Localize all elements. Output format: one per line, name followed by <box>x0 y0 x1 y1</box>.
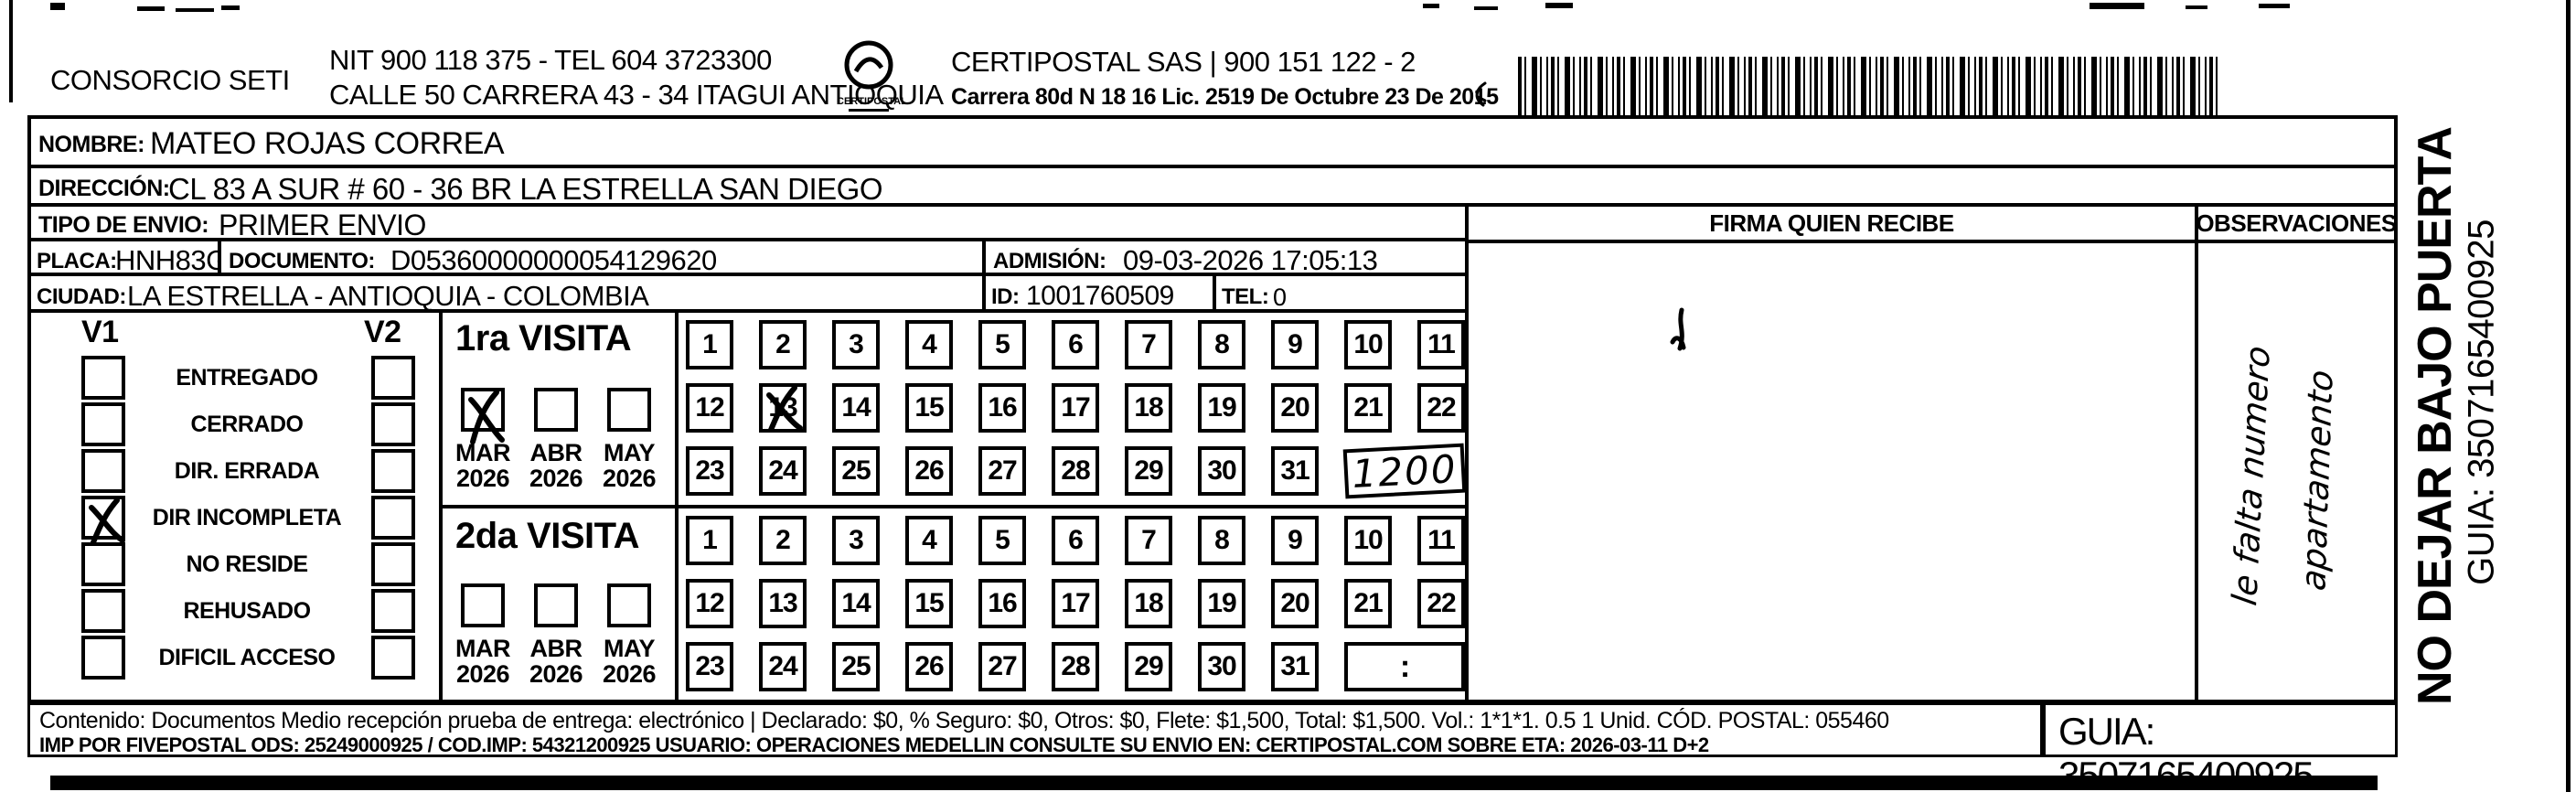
scan-artifact-bottom-bar <box>50 776 2378 790</box>
first-visit-month-checkbox-may <box>607 388 651 432</box>
second-visit-day-cell-22: 22 <box>1417 579 1465 628</box>
first-visit-month-checkbox-abr <box>534 388 578 432</box>
first-visit-day-cell-4: 4 <box>905 320 953 369</box>
second-visit-month-label: ABR <box>519 635 593 663</box>
ciudad-cell: CIUDAD: LA ESTRELLA - ANTIOQUIA - COLOMB… <box>27 273 986 313</box>
footer-imp-line: IMP POR FIVEPOSTAL ODS: 25249000925 / CO… <box>39 733 1709 757</box>
second-visit-day-cell-17: 17 <box>1052 579 1099 628</box>
v1-checkbox-no-reside <box>81 542 125 586</box>
scan-artifact <box>137 6 165 11</box>
documento-cell: DOCUMENTO: D05360000000054129620 <box>218 238 986 276</box>
observaciones-header: OBSERVACIONES <box>2198 207 2394 243</box>
firma-header: FIRMA QUIEN RECIBE <box>1469 207 2195 243</box>
first-visit-time-box: 1200 <box>1343 444 1467 499</box>
tracking-barcode <box>1518 57 2218 117</box>
v1-checkbox-dir-errada <box>81 449 125 493</box>
first-visit-month-label: ABR <box>519 439 593 467</box>
second-visit-month-checkbox-mar <box>461 583 505 627</box>
ink-smudge <box>1470 80 1491 108</box>
scan-artifact <box>2259 4 2290 8</box>
direccion-value: CL 83 A SUR # 60 - 36 BR LA ESTRELLA SAN… <box>168 172 882 207</box>
first-visit-day-cell-6: 6 <box>1052 320 1099 369</box>
id-value: 1001760509 <box>1026 281 1174 312</box>
nombre-label: NOMBRE: <box>38 132 144 158</box>
certipostal-logo-icon <box>842 38 895 91</box>
placa-label: PLACA: <box>37 249 117 274</box>
status-option-label: DIR. ERRADA <box>125 458 369 485</box>
second-visit-day-cell-8: 8 <box>1198 516 1245 565</box>
v1-checkbox-dir-incompleta <box>81 496 125 540</box>
first-visit-day-cell-28: 28 <box>1052 446 1099 496</box>
first-visit-year-label: 2026 <box>519 465 593 493</box>
second-visit-day-cell-3: 3 <box>832 516 880 565</box>
v2-column-header: V2 <box>364 315 401 350</box>
scan-artifact <box>1423 4 1439 8</box>
observaciones-column: OBSERVACIONES <box>2195 203 2398 703</box>
first-visit-day-cell-24: 24 <box>759 446 807 496</box>
first-visit-day-cell-18: 18 <box>1125 383 1172 433</box>
status-option-label: REHUSADO <box>125 598 369 625</box>
direccion-row: DIRECCIÓN: CL 83 A SUR # 60 - 36 BR LA E… <box>27 165 2398 207</box>
second-visit-day-cell-31: 31 <box>1271 642 1319 691</box>
first-visit-month-label: MAY <box>593 439 666 467</box>
first-visit-day-cell-1: 1 <box>686 320 733 369</box>
side-guia-number: GUIA: 3507165400925 <box>2462 219 2503 585</box>
first-visit-day-cell-10: 10 <box>1344 320 1392 369</box>
first-visit-day-cell-30: 30 <box>1198 446 1245 496</box>
first-visit-day-cell-16: 16 <box>978 383 1026 433</box>
v1-column-header: V1 <box>81 315 119 350</box>
v2-checkbox-dificil-acceso <box>371 636 415 680</box>
no-dejar-bajo-puerta-label: NO DEJAR BAJO PUERTA <box>2408 127 2463 705</box>
second-visit-day-cell-4: 4 <box>905 516 953 565</box>
scan-artifact <box>50 3 65 10</box>
v2-checkbox-dir-incompleta <box>371 496 415 540</box>
first-visit-day-cell-14: 14 <box>832 383 880 433</box>
second-visit-title: 2da VISITA <box>455 516 639 557</box>
direccion-label: DIRECCIÓN: <box>38 176 170 202</box>
first-visit-day-cell-26: 26 <box>905 446 953 496</box>
first-visit-day-cell-31: 31 <box>1271 446 1319 496</box>
delivery-status-section: V1 V2 ENTREGADOCERRADODIR. ERRADADIR INC… <box>27 309 443 703</box>
first-visit-day-cell-5: 5 <box>978 320 1026 369</box>
handwritten-x-mark <box>460 385 513 444</box>
footer-guia-number: GUIA: 3507165400925 <box>2058 710 2395 792</box>
admision-label: ADMISIÓN: <box>993 249 1106 274</box>
first-visit-day-cell-20: 20 <box>1271 383 1319 433</box>
id-label: ID: <box>991 284 1020 310</box>
second-visit-day-cell-6: 6 <box>1052 516 1099 565</box>
first-visit-day-cell-22: 22 <box>1417 383 1465 433</box>
second-visit-day-cell-20: 20 <box>1271 579 1319 628</box>
footer-contents-line: Contenido: Documentos Medio recepción pr… <box>39 708 1889 734</box>
observaciones-handwriting-line2: apartamento <box>2293 368 2340 594</box>
footer-info-box: Contenido: Documentos Medio recepción pr… <box>27 702 2043 757</box>
first-visit-day-cell-8: 8 <box>1198 320 1245 369</box>
first-visit-month-label: MAR <box>446 439 519 467</box>
company-nit-line: NIT 900 118 375 - TEL 604 3723300 <box>329 44 772 77</box>
second-visit-month-checkbox-abr <box>534 583 578 627</box>
v1-checkbox-entregado <box>81 356 125 400</box>
documento-label: DOCUMENTO: <box>229 249 375 274</box>
v2-checkbox-entregado <box>371 356 415 400</box>
status-option-label: DIFICIL ACCESO <box>125 645 369 671</box>
first-visit-day-cell-13: 13 <box>759 383 807 433</box>
scan-artifact <box>2186 5 2207 9</box>
scan-artifact-right-edge <box>2566 0 2571 792</box>
scan-artifact <box>1474 6 1498 10</box>
scan-artifact <box>1545 3 1573 8</box>
first-visit-day-cell-7: 7 <box>1125 320 1172 369</box>
second-visit-month-checkbox-may <box>607 583 651 627</box>
second-visit-day-cell-23: 23 <box>686 642 733 691</box>
second-visit-day-cell-9: 9 <box>1271 516 1319 565</box>
admision-cell: ADMISIÓN: 09-03-2026 17:05:13 <box>982 238 1469 276</box>
status-option-label: ENTREGADO <box>125 365 369 391</box>
first-visit-day-cell-25: 25 <box>832 446 880 496</box>
tipo-envio-row: TIPO DE ENVIO: PRIMER ENVIO <box>27 203 1469 241</box>
ciudad-value: LA ESTRELLA - ANTIOQUIA - COLOMBIA <box>127 280 648 313</box>
status-option-label: DIR INCOMPLETA <box>125 505 369 531</box>
second-visit-day-cell-18: 18 <box>1125 579 1172 628</box>
first-visit-title: 1ra VISITA <box>455 318 631 359</box>
placa-cell: PLACA: HNH83G <box>27 238 221 276</box>
second-visit-day-cell-12: 12 <box>686 579 733 628</box>
scan-artifact <box>221 5 240 10</box>
v2-checkbox-no-reside <box>371 542 415 586</box>
second-visit-year-label: 2026 <box>593 660 666 689</box>
tel-cell: TEL: 0 <box>1213 273 1469 313</box>
second-visit-day-cell-29: 29 <box>1125 642 1172 691</box>
second-visit-month-label: MAY <box>593 635 666 663</box>
second-visit-day-cell-5: 5 <box>978 516 1026 565</box>
first-visit-day-grid: 1234567891011121314151617181920212223242… <box>675 309 1469 508</box>
first-visit-day-cell-15: 15 <box>905 383 953 433</box>
tel-value: 0 <box>1273 284 1287 312</box>
first-visit-day-cell-21: 21 <box>1344 383 1392 433</box>
second-visit-panel: 2da VISITA MAR2026ABR2026MAY2026 <box>439 505 679 703</box>
first-visit-day-cell-3: 3 <box>832 320 880 369</box>
second-visit-day-grid: 1234567891011121314151617181920212223242… <box>675 505 1469 703</box>
second-visit-day-cell-16: 16 <box>978 579 1026 628</box>
tel-label: TEL: <box>1222 284 1268 310</box>
ciudad-label: CIUDAD: <box>37 284 126 310</box>
scan-artifact <box>2090 3 2144 9</box>
second-visit-year-label: 2026 <box>446 660 519 689</box>
v1-checkbox-cerrado <box>81 402 125 446</box>
second-visit-day-cell-19: 19 <box>1198 579 1245 628</box>
id-cell: ID: 1001760509 <box>982 273 1216 313</box>
second-visit-day-cell-7: 7 <box>1125 516 1172 565</box>
certipostal-logo: CERTIPOSTAL <box>837 38 901 112</box>
v1-checkbox-dificil-acceso <box>81 636 125 680</box>
signature-ink-mark <box>1665 307 1693 362</box>
first-visit-day-cell-2: 2 <box>759 320 807 369</box>
first-visit-day-cell-11: 11 <box>1417 320 1465 369</box>
firma-column: FIRMA QUIEN RECIBE <box>1465 203 2198 703</box>
first-visit-day-cell-17: 17 <box>1052 383 1099 433</box>
tipo-envio-label: TIPO DE ENVIO: <box>38 212 208 239</box>
nombre-value: MATEO ROJAS CORREA <box>150 126 504 162</box>
second-visit-day-cell-1: 1 <box>686 516 733 565</box>
second-visit-day-cell-26: 26 <box>905 642 953 691</box>
second-visit-day-cell-13: 13 <box>759 579 807 628</box>
first-visit-panel: 1ra VISITA MAR2026ABR2026MAY2026 <box>439 309 679 508</box>
second-visit-day-cell-30: 30 <box>1198 642 1245 691</box>
second-visit-day-cell-11: 11 <box>1417 516 1465 565</box>
second-visit-day-cell-27: 27 <box>978 642 1026 691</box>
scan-artifact <box>9 0 13 102</box>
second-visit-month-label: MAR <box>446 635 519 663</box>
first-visit-year-label: 2026 <box>593 465 666 493</box>
nombre-row: NOMBRE: MATEO ROJAS CORREA <box>27 115 2398 168</box>
second-visit-day-cell-21: 21 <box>1344 579 1392 628</box>
second-visit-time-box: : <box>1344 642 1465 691</box>
first-visit-day-cell-19: 19 <box>1198 383 1245 433</box>
second-visit-day-cell-24: 24 <box>759 642 807 691</box>
first-visit-year-label: 2026 <box>446 465 519 493</box>
second-visit-day-cell-28: 28 <box>1052 642 1099 691</box>
first-visit-day-cell-27: 27 <box>978 446 1026 496</box>
second-visit-day-cell-15: 15 <box>905 579 953 628</box>
v1-checkbox-rehusado <box>81 589 125 633</box>
footer-guia-box: GUIA: 3507165400925 <box>2043 702 2398 757</box>
logo-underline <box>849 109 889 112</box>
first-visit-day-cell-23: 23 <box>686 446 733 496</box>
scan-artifact <box>176 8 214 12</box>
first-visit-day-cell-29: 29 <box>1125 446 1172 496</box>
company-name: CONSORCIO SETI <box>50 64 290 97</box>
certipostal-logo-caption: CERTIPOSTAL <box>837 96 901 107</box>
second-visit-day-cell-25: 25 <box>832 642 880 691</box>
second-visit-day-cell-2: 2 <box>759 516 807 565</box>
second-visit-day-cell-10: 10 <box>1344 516 1392 565</box>
status-option-label: CERRADO <box>125 412 369 438</box>
status-option-label: NO RESIDE <box>125 551 369 578</box>
second-visit-day-cell-14: 14 <box>832 579 880 628</box>
first-visit-day-cell-9: 9 <box>1271 320 1319 369</box>
handwritten-x-mark <box>758 380 811 439</box>
first-visit-day-cell-12: 12 <box>686 383 733 433</box>
waybill-document: CONSORCIO SETI NIT 900 118 375 - TEL 604… <box>0 0 2576 792</box>
v2-checkbox-cerrado <box>371 402 415 446</box>
first-visit-month-checkbox-mar <box>461 388 505 432</box>
second-visit-year-label: 2026 <box>519 660 593 689</box>
certipostal-company-line: CERTIPOSTAL SAS | 900 151 122 - 2 <box>951 46 1416 79</box>
v2-checkbox-dir-errada <box>371 449 415 493</box>
v2-checkbox-rehusado <box>371 589 415 633</box>
certipostal-license-line: Carrera 80d N 18 16 Lic. 2519 De Octubre… <box>951 84 1498 111</box>
